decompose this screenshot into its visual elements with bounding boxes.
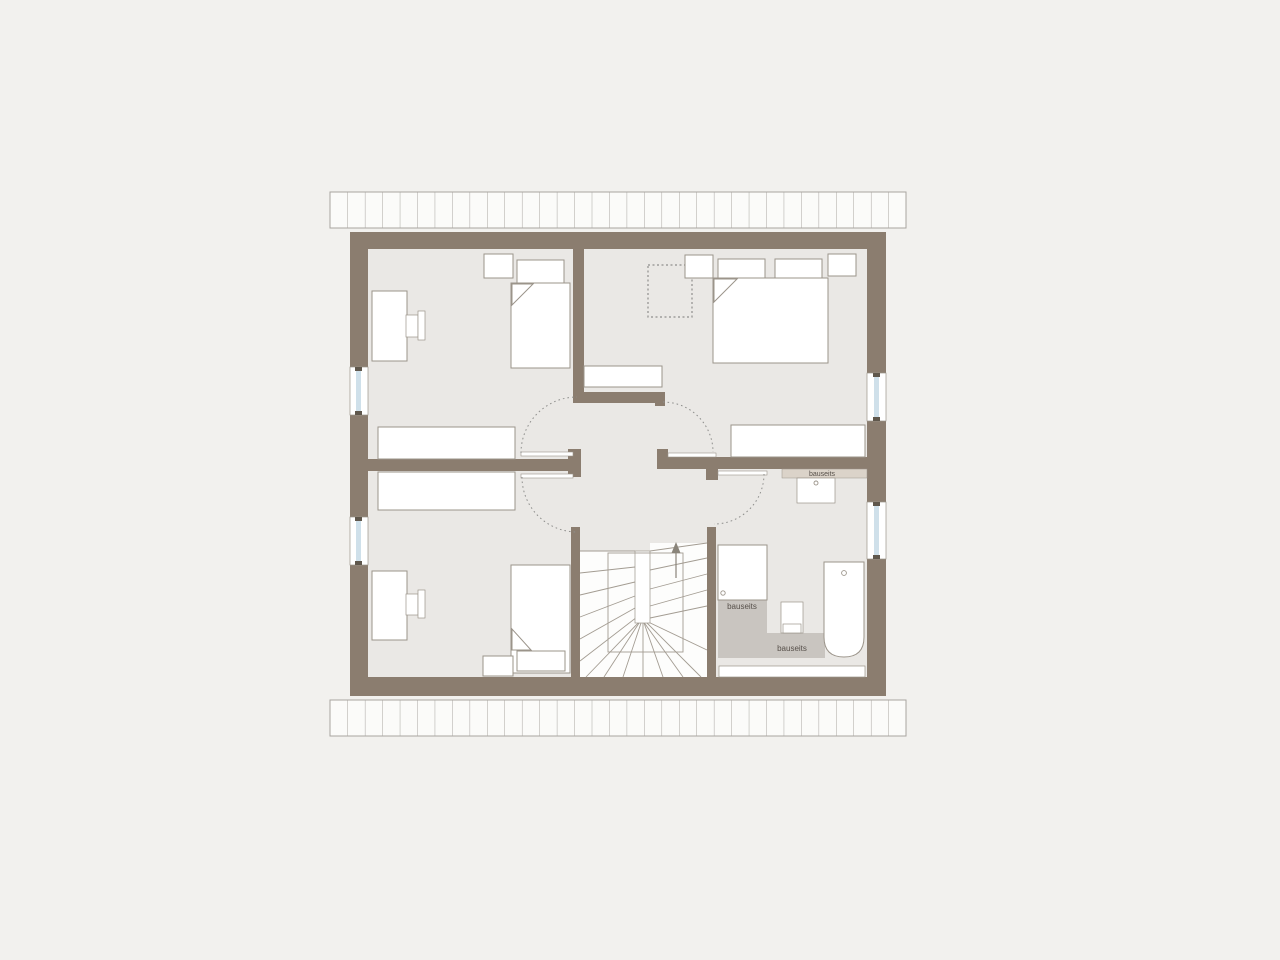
desk-chair-seat: [406, 594, 418, 615]
dresser: [731, 425, 865, 457]
hall: [584, 366, 662, 387]
wall-bath-door-stub: [706, 469, 718, 480]
bauseits-label-floor: bauseits: [777, 644, 807, 653]
nightstand: [483, 656, 513, 676]
double-bed: [713, 278, 828, 363]
staircase: [580, 542, 707, 677]
bed-pillow-right: [775, 259, 822, 278]
wall-mid-right-cap: [657, 449, 668, 457]
window-right-lower: [867, 502, 886, 559]
desk: [372, 571, 407, 640]
door-leaf-bathroom: [718, 471, 767, 475]
window-left-upper: [350, 367, 368, 415]
desk-chair-back: [418, 311, 425, 340]
bed-pillow: [517, 651, 565, 671]
bathtub: [824, 562, 864, 657]
bedside-shelf: [484, 254, 513, 278]
wardrobe: [378, 472, 515, 510]
wall-top-rooms-divider: [573, 249, 584, 392]
door-leaf-room-bottom-left: [521, 474, 573, 478]
nightstand-right: [828, 254, 856, 276]
wall-stair-right: [707, 527, 716, 677]
door-leaf-master-bedroom: [668, 453, 716, 457]
washbasin: [797, 478, 835, 503]
floor-plan-canvas: bauseits bauseits bauseits: [0, 0, 1280, 960]
wall-stair-left: [571, 527, 580, 677]
hall-sideboard: [584, 366, 662, 387]
wall-mid-right: [657, 457, 867, 469]
window-right-upper: [867, 373, 886, 421]
stair-spine: [635, 551, 650, 623]
bed-pillow: [517, 260, 564, 283]
window-left-lower: [350, 517, 368, 565]
desk-chair-seat: [406, 315, 418, 337]
shower: [718, 545, 767, 600]
desk-chair-back: [418, 590, 425, 618]
toilet-base: [783, 624, 801, 633]
wall-hall-top: [573, 392, 665, 403]
bed-pillow-left: [718, 259, 765, 278]
bauseits-label-shower: bauseits: [727, 602, 757, 611]
wall-hall-top-cap: [655, 392, 665, 406]
knee-wall-niche: [719, 666, 865, 677]
wardrobe: [378, 427, 515, 459]
roof-overhang-bottom: [330, 700, 906, 736]
door-leaf-room-top-left: [521, 452, 573, 456]
bauseits-label-counter: bauseits: [809, 471, 836, 478]
nightstand-left: [685, 255, 713, 278]
wall-mid-left: [368, 459, 568, 471]
roof-overhang-top: [330, 192, 906, 228]
desk: [372, 291, 407, 361]
